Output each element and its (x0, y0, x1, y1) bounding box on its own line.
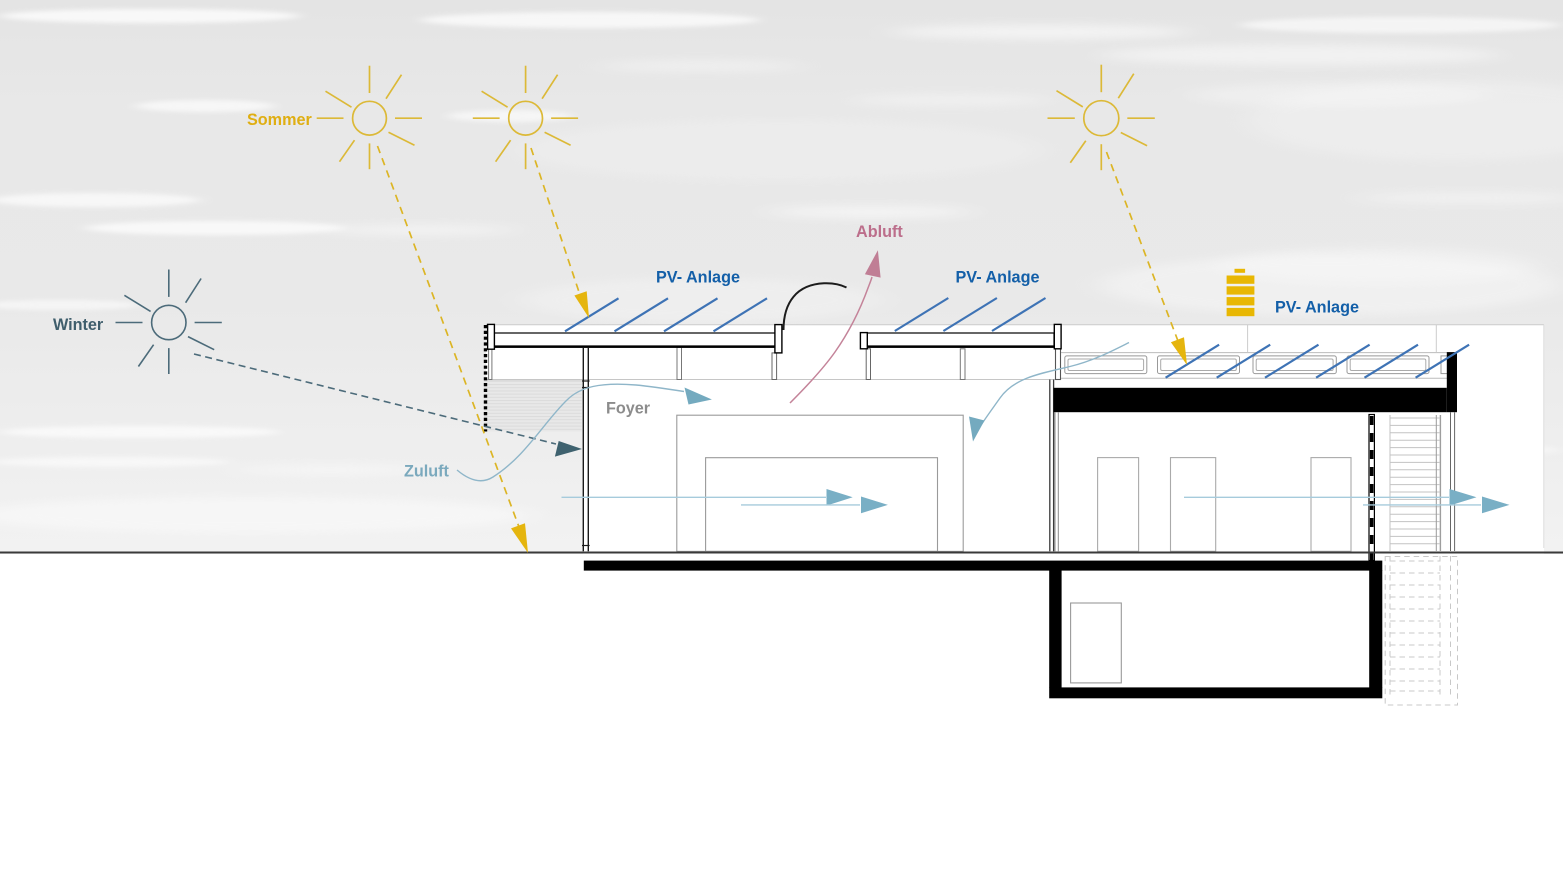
svg-text:PV- Anlage: PV- Anlage (956, 269, 1040, 287)
svg-text:PV- Anlage: PV- Anlage (656, 269, 740, 287)
svg-text:Sommer: Sommer (247, 111, 312, 129)
svg-text:Foyer: Foyer (606, 400, 651, 418)
svg-text:Winter: Winter (53, 316, 104, 334)
svg-text:Zuluft: Zuluft (404, 463, 450, 481)
svg-text:PV- Anlage: PV- Anlage (1275, 299, 1359, 317)
svg-text:Abluft: Abluft (856, 223, 903, 241)
